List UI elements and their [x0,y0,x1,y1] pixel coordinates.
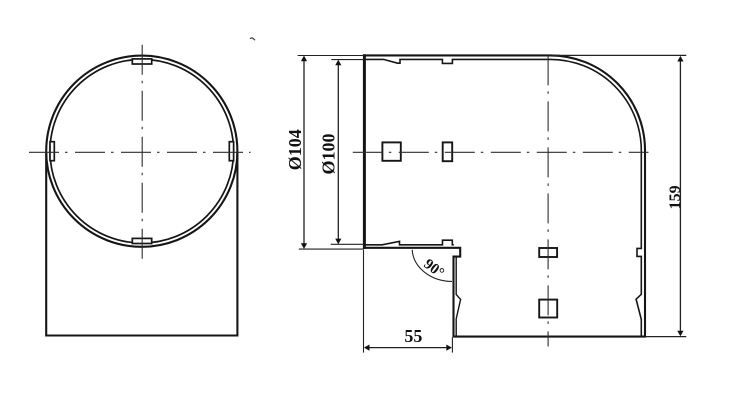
svg-text:90°: 90° [420,256,446,281]
svg-text:Ø104: Ø104 [285,129,305,170]
svg-text:Ø100: Ø100 [319,133,339,174]
svg-text:159: 159 [667,185,684,209]
svg-text:55: 55 [404,326,422,346]
